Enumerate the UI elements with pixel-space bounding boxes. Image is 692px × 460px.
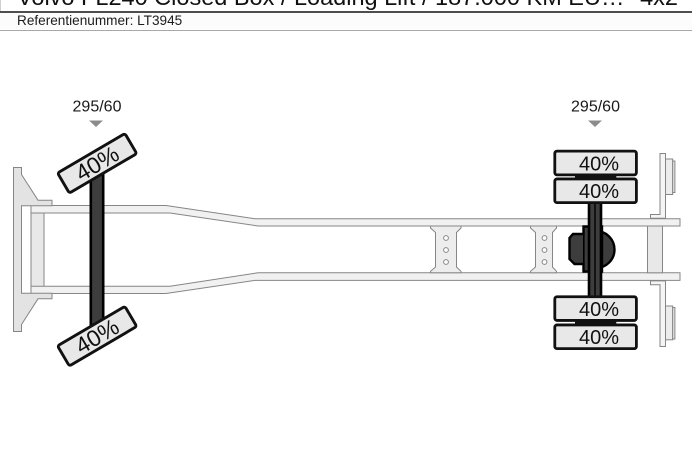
svg-text:40%: 40% (579, 327, 619, 349)
svg-text:295/60: 295/60 (73, 99, 122, 116)
svg-text:40%: 40% (579, 181, 619, 203)
svg-text:40%: 40% (579, 153, 619, 175)
svg-text:40%: 40% (579, 299, 619, 321)
svg-text:295/60: 295/60 (571, 99, 620, 116)
